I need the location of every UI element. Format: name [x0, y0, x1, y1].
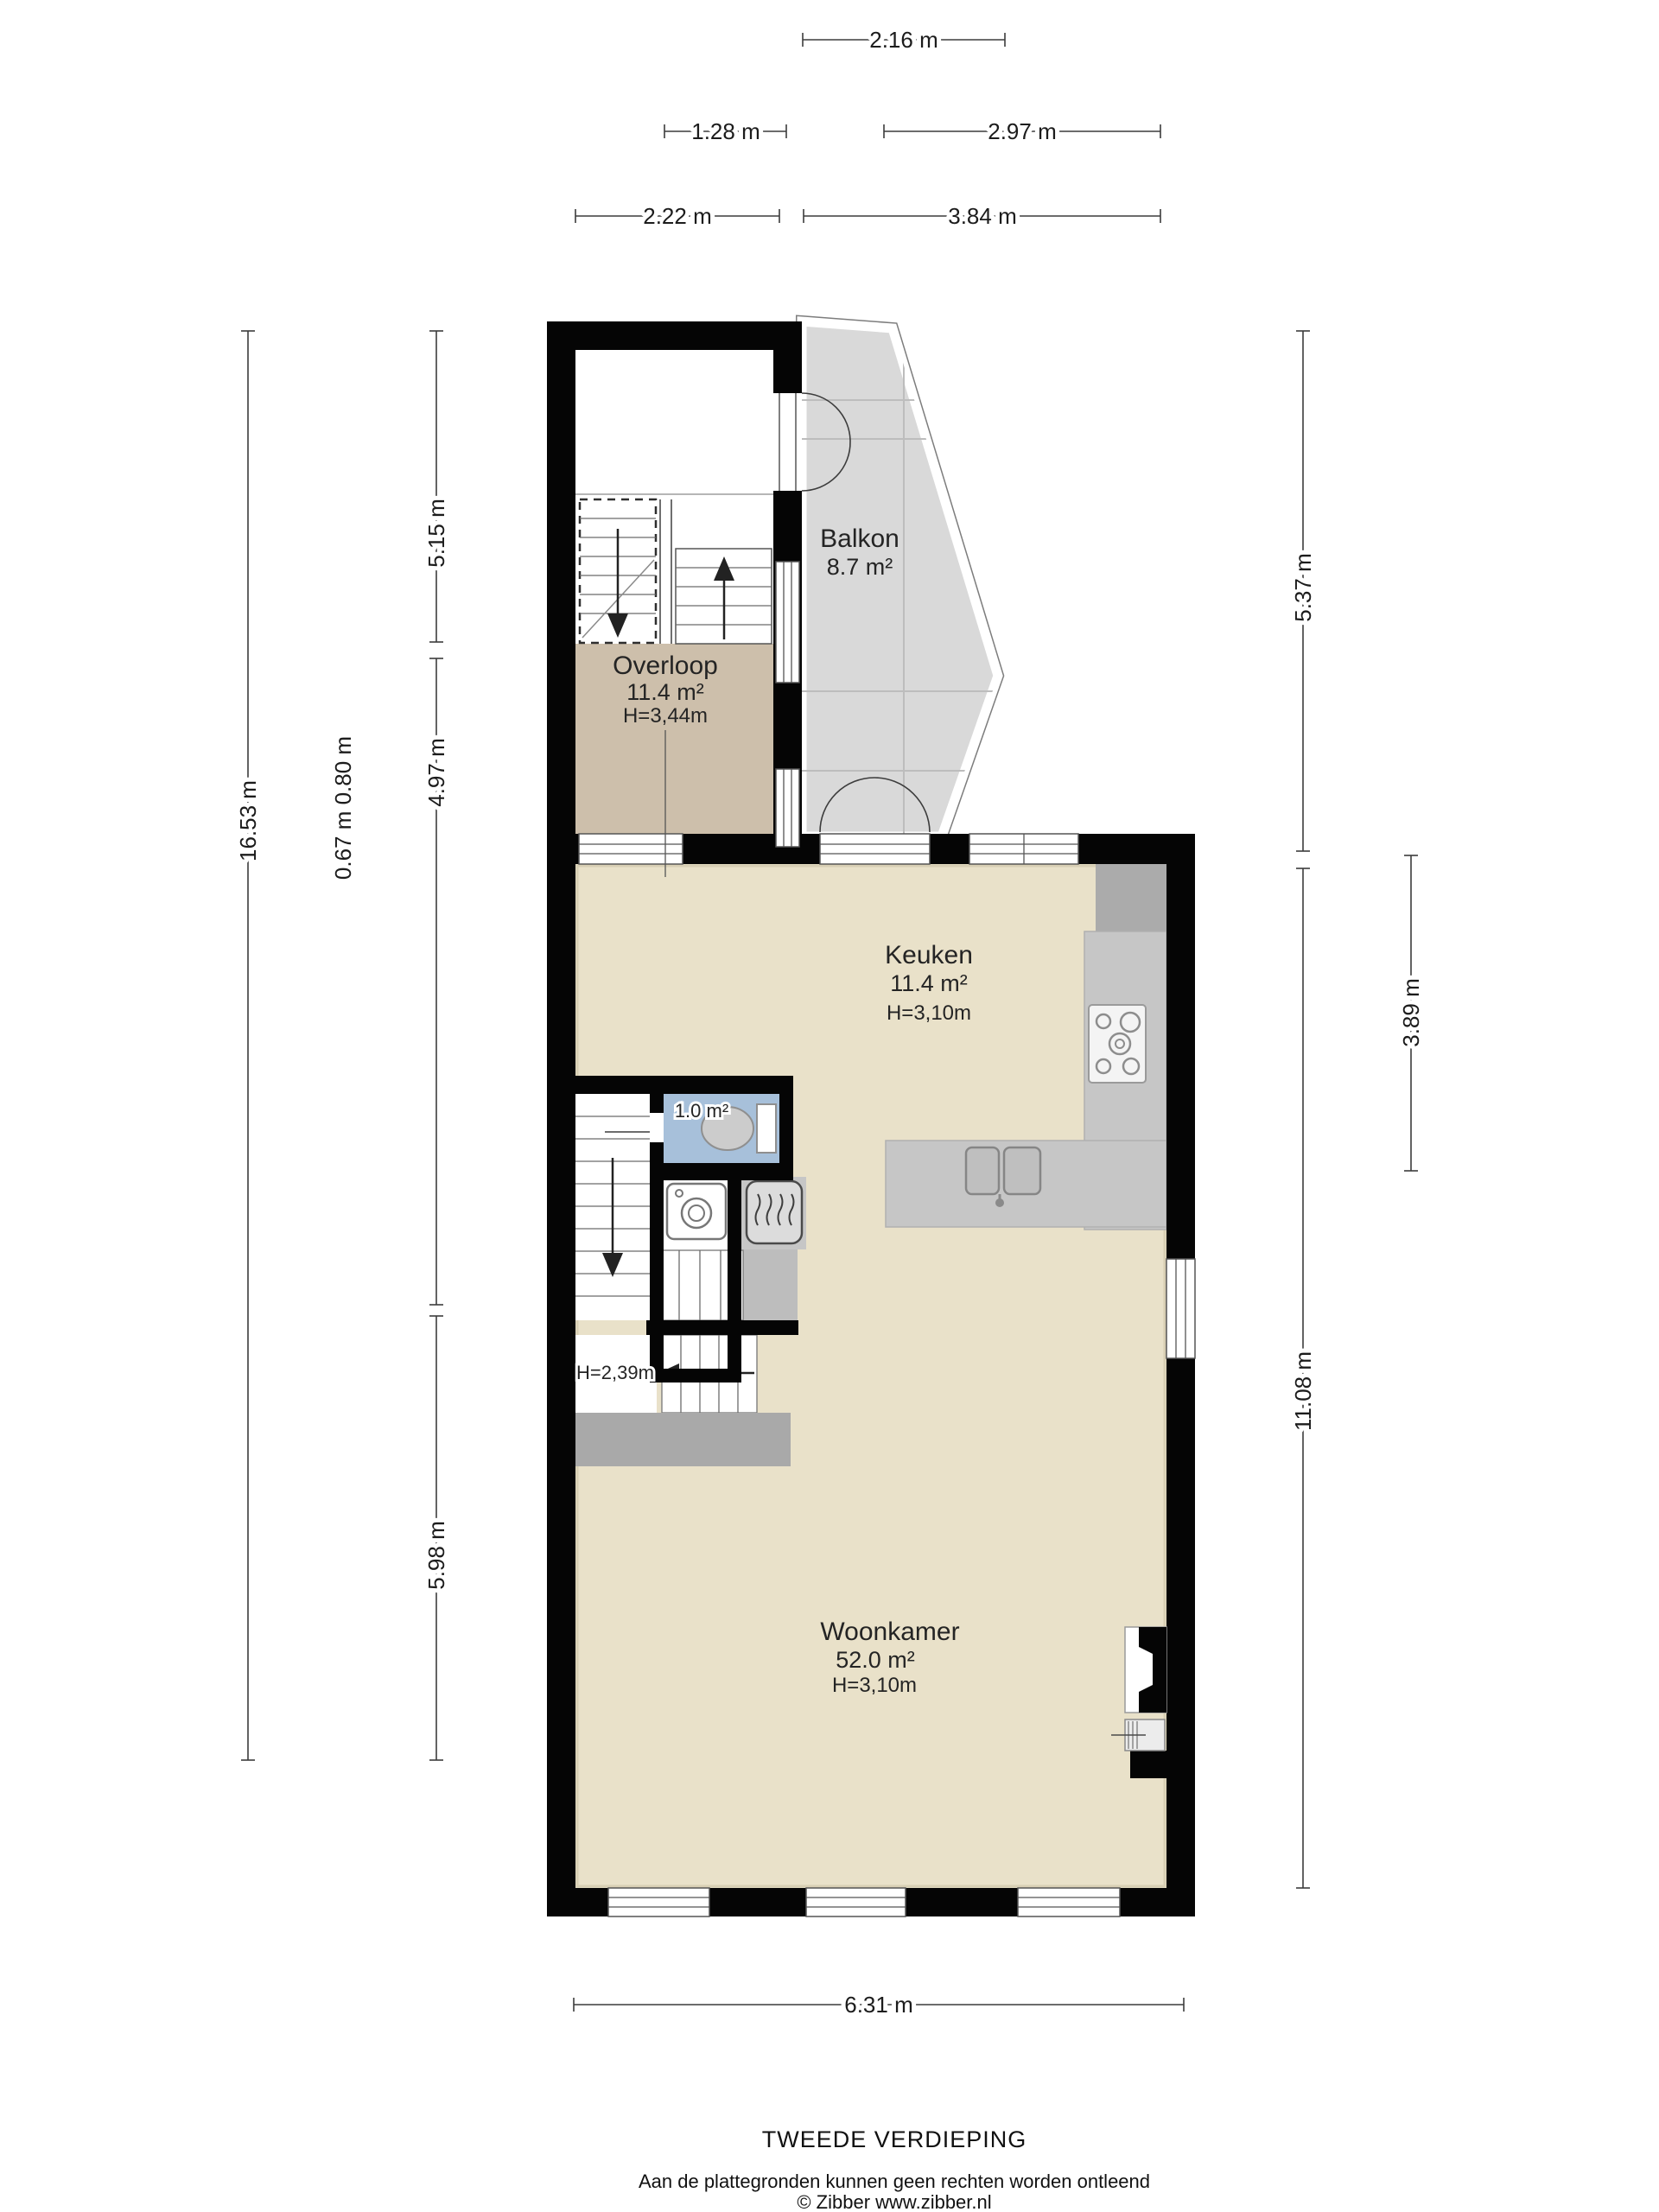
toilet-area: 1.0 m²: [675, 1100, 728, 1122]
dim-label: 2.16 m: [869, 27, 938, 53]
fridge: [1096, 864, 1166, 933]
keuken-name: Keuken: [885, 941, 973, 969]
dim-label: 6.31 m: [844, 1992, 913, 2018]
staircase-up-solid: [676, 549, 772, 644]
woonkamer-name: Woonkamer: [820, 1618, 959, 1646]
keuken-height: H=3,10m: [887, 1001, 971, 1025]
window-bottom-2: [806, 1888, 906, 1916]
dim-label: 3.84 m: [948, 203, 1017, 229]
overloop-height: H=3,44m: [623, 704, 708, 728]
dim-label-067-080: 0.67 m 0.80 m: [330, 736, 356, 880]
duct-strip: [741, 1249, 798, 1322]
dim-right-1108: 11.08 m: [1290, 868, 1316, 1888]
dim-left-515: 5.15 m: [423, 331, 449, 642]
dim-top-128: 1.28 m: [664, 118, 786, 144]
dim-label: 3.89 m: [1398, 978, 1424, 1047]
stair-height: H=2,39m: [576, 1362, 654, 1383]
window-bottom-3: [1018, 1888, 1120, 1916]
stove-icon: [1089, 1005, 1146, 1083]
floor-plan-drawing: Balkon 8.7 m² Overloop 11.4 m² H=3,44m K…: [0, 0, 1659, 2212]
dim-label: 2.97 m: [988, 118, 1057, 144]
dim-right-389: 3.89 m: [1398, 855, 1424, 1171]
woonkamer-area: 52.0 m²: [836, 1647, 915, 1673]
staircase-up-dashed: [580, 499, 656, 643]
wall-top: [547, 321, 802, 350]
window-balkon-low: [776, 769, 799, 847]
dim-right-537: 5.37 m: [1290, 331, 1316, 851]
lowered-ceiling-strip: [575, 1413, 791, 1466]
dim-label: 5.15 m: [423, 499, 449, 568]
overloop-name: Overloop: [613, 652, 718, 680]
dim-label: 4.97 m: [423, 738, 449, 807]
heater-icon: [747, 1181, 802, 1243]
wall-stairs: [646, 1320, 798, 1335]
keuken-area: 11.4 m²: [890, 970, 968, 996]
window-keuken-right: [1166, 1259, 1195, 1358]
floor-title: TWEEDE VERDIEPING: [762, 2126, 1027, 2152]
wall-left: [547, 321, 575, 1916]
disclaimer-text: Aan de plattegronden kunnen geen rechten…: [639, 2171, 1150, 2192]
dim-left-497: 4.97 m: [423, 658, 449, 1305]
window-keuken-top: [969, 834, 1078, 864]
dim-label: 2.22 m: [643, 203, 712, 229]
dim-top-222: 2.22 m: [575, 203, 779, 229]
dim-top-384: 3.84 m: [804, 203, 1160, 229]
dim-left-1653: 16.53 m: [235, 331, 261, 1760]
dim-label: 5.37 m: [1290, 553, 1316, 622]
dim-left-598: 5.98 m: [423, 1316, 449, 1760]
credit-text: © Zibber www.zibber.nl: [797, 2191, 991, 2212]
window-balkon-mid: [776, 562, 799, 683]
washing-machine-icon: [667, 1184, 726, 1239]
dim-bottom-631: 6.31 m: [574, 1992, 1184, 2018]
dim-top-297: 2.97 m: [884, 118, 1160, 144]
fireplace: [1125, 1627, 1166, 1713]
dim-top-216: 2.16 m: [803, 27, 1005, 53]
floorplan-page: Balkon 8.7 m² Overloop 11.4 m² H=3,44m K…: [0, 0, 1659, 2212]
woonkamer-height: H=3,10m: [832, 1674, 917, 1697]
balkon-area: 8.7 m²: [827, 554, 893, 580]
window-overloop: [579, 834, 683, 864]
footer: TWEEDE VERDIEPING Aan de plattegronden k…: [639, 2126, 1150, 2212]
dim-label: 16.53 m: [235, 780, 261, 861]
overloop-area: 11.4 m²: [626, 679, 704, 705]
dim-label: 5.98 m: [423, 1521, 449, 1590]
wall-right: [1166, 864, 1195, 1916]
dim-label: 11.08 m: [1290, 1351, 1316, 1431]
dim-label: 1.28 m: [691, 118, 760, 144]
balkon-name: Balkon: [820, 524, 899, 553]
window-bottom-1: [608, 1888, 709, 1916]
staircase-main: [575, 1094, 650, 1320]
